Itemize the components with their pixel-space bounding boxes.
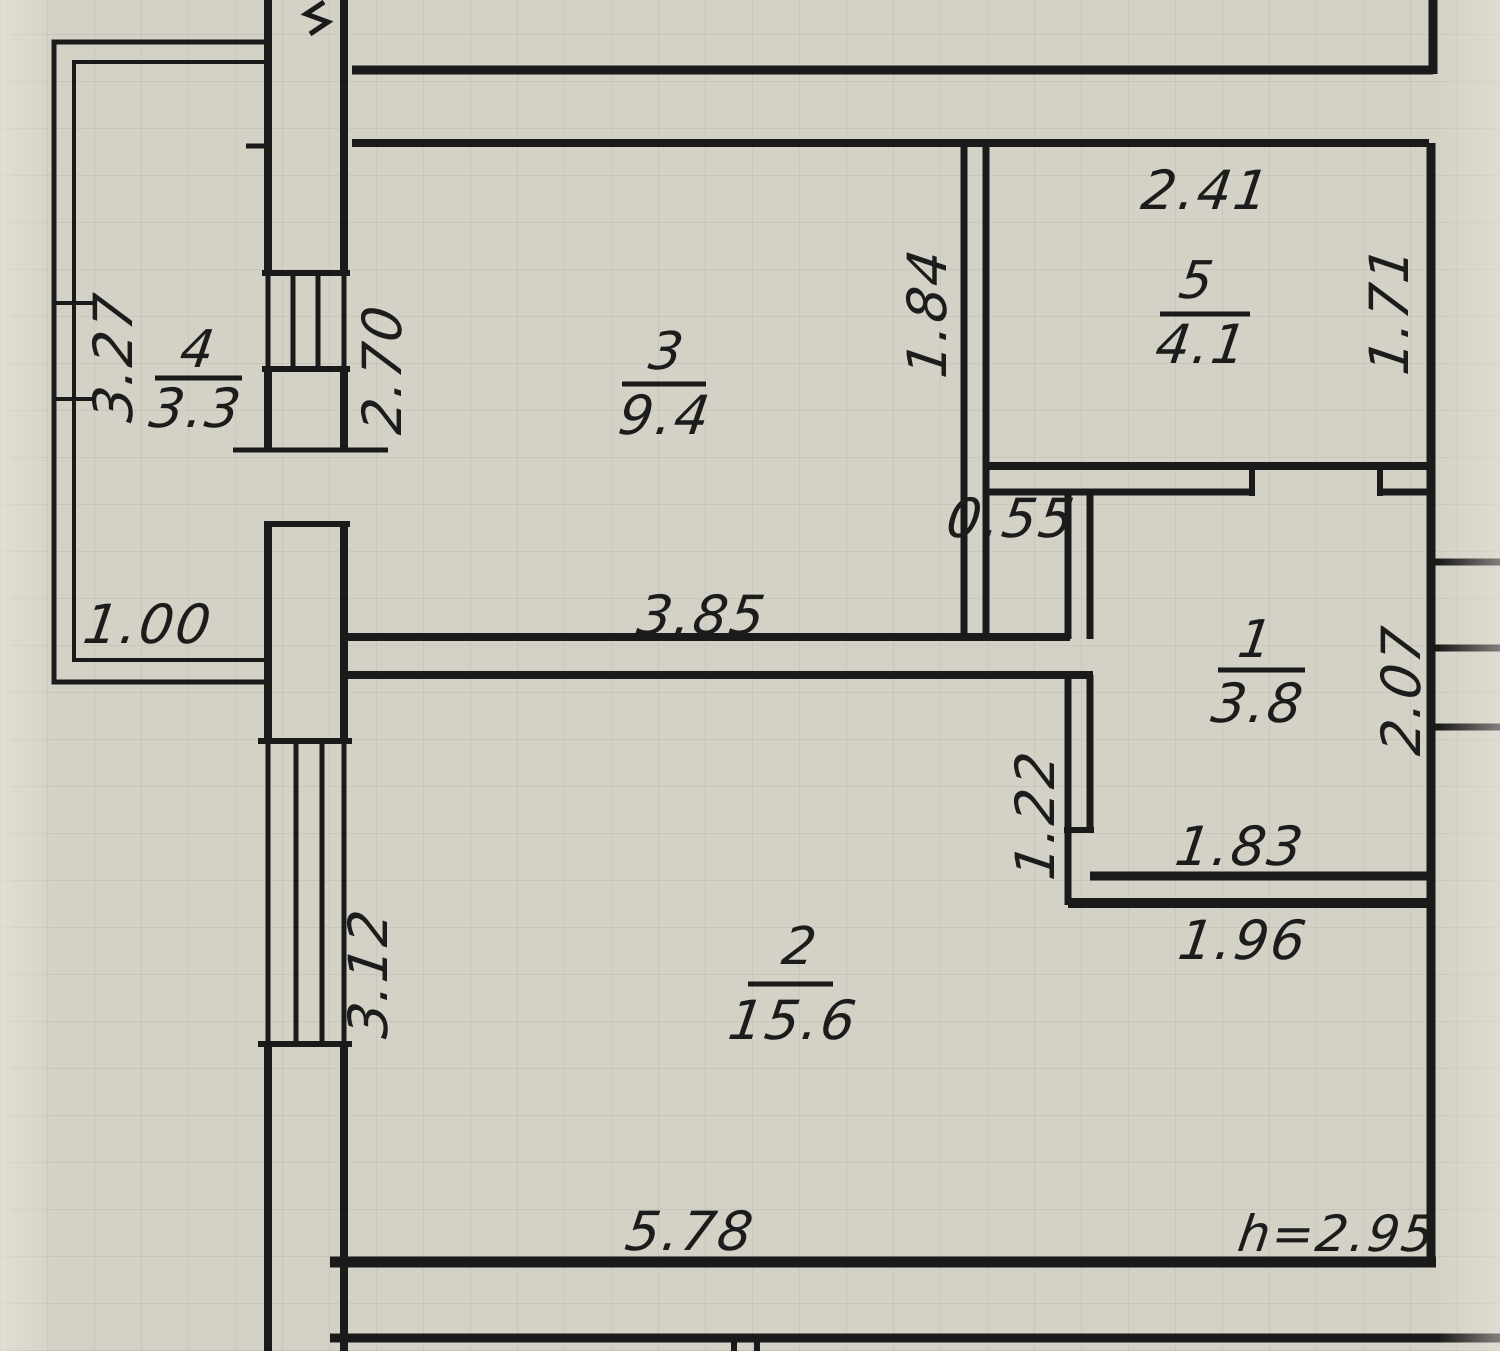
- wall-room3-room5: [964, 143, 986, 639]
- wall-lower-structure: [330, 1338, 1500, 1351]
- dim-room2-width: 5.78: [622, 1205, 758, 1259]
- room5-number: 5: [1176, 255, 1218, 307]
- room4-number: 4: [177, 324, 219, 376]
- dim-partition-height: 1.84: [901, 245, 955, 381]
- room3-number: 3: [646, 326, 688, 378]
- dim-room1-height: 2.07: [1375, 622, 1429, 758]
- room2-number: 2: [779, 921, 821, 973]
- dim-room5-height: 1.71: [1363, 242, 1417, 378]
- floor-plan-page: 4 3.3 3 9.4 5 4.1 1 3.8 2 15.6 3.27 1.00…: [0, 0, 1500, 1351]
- dim-room1-wall-jog: 1.22: [1009, 747, 1063, 883]
- wall-outer-left: [268, 0, 344, 1351]
- room4-area: 3.3: [146, 382, 245, 436]
- wall-outer-top: [352, 0, 1433, 143]
- ceiling-height-label: h=2.95: [1235, 1209, 1439, 1259]
- wall-outer-right: [1431, 143, 1500, 1267]
- door-balcony-icon: [233, 450, 388, 524]
- room1-number: 1: [1235, 614, 1277, 666]
- dim-room2-height: 3.12: [342, 905, 396, 1041]
- dim-room3-width: 3.85: [634, 589, 770, 643]
- dim-balcony-height: 3.27: [87, 289, 141, 425]
- window-balcony-icon: [262, 273, 350, 369]
- wall-room1-left: [1064, 675, 1094, 905]
- dim-room1-width: 1.83: [1172, 820, 1308, 874]
- room3-area: 9.4: [615, 389, 714, 443]
- dim-room5-width: 2.41: [1138, 164, 1274, 218]
- wall-break-icon: [306, 2, 328, 34]
- room1-area: 3.8: [1208, 677, 1307, 731]
- room-label-bars: [155, 314, 1305, 984]
- dim-room3-left-height: 2.70: [356, 301, 410, 437]
- room5-area: 4.1: [1152, 318, 1251, 372]
- dim-niche-width: 0.55: [943, 492, 1079, 546]
- room2-area: 15.6: [725, 994, 861, 1048]
- dim-room1-bottom-width: 1.96: [1175, 914, 1311, 968]
- dim-balcony-width: 1.00: [80, 598, 216, 652]
